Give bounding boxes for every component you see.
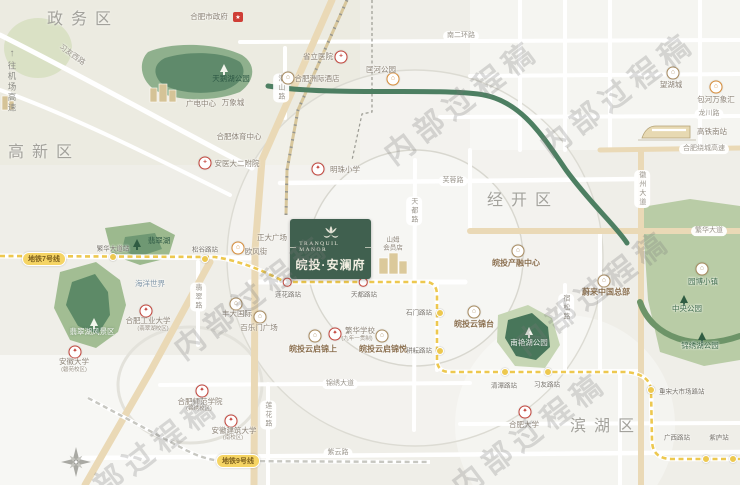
poi-label-fanhua-school: 繁华学校 [345,327,375,335]
road-label-longchuan: 龙川路 [695,109,724,119]
poi-label-sam-club: 会员店 [383,244,403,251]
poi-label-feicui-lake: 翡翠湖 [148,237,171,245]
station-label-tiandu: 天都路站 [351,291,377,298]
poi-label-yunjintai: 皖投云锦台 [454,321,494,330]
poi-label-mixc: 万象城 [222,99,245,107]
poi-label-mingzhu-primary: 明珠小学 [330,166,360,174]
poi-label-yunqi-jinshang: 皖投云启锦上 [289,346,337,355]
metro-station-dot [501,368,509,376]
station-label-songgu: 松谷路站 [192,246,218,253]
road-label-lianhua: 莲花路 [260,401,276,430]
poi-label-provincial-hospital: 省立医院 [303,53,333,61]
poi-label-ahjzu: 安徽建筑大学 [212,427,257,435]
metro-station-dot [544,368,552,376]
station-label-shimen: 石门路站 [406,309,432,316]
hospital-icon [199,157,212,170]
poi-label-guangdian: 广电中心 [186,100,216,108]
station-label-zilu: 紫庐站 [709,434,729,441]
mall-icon [710,81,723,94]
poi-label-anhui-univ: 安徽大学 [59,358,89,366]
poi-label-fanhua-school-sub: (九年一贯制) [341,336,372,342]
district-label-jingkai: 经开区 [487,186,559,210]
road-label-ziyun: 紫云路 [324,448,353,458]
poi-label-gov: 合肥市政府 [190,13,228,21]
location-map: 内部过程稿 内部过程稿 内部过程稿 内部过程稿 内部过程稿 内部过程稿 政务区 … [0,0,740,485]
road-label-tiandu: 天都路 [406,197,422,226]
poi-label-feicui-lake-scenic: 翡翠湖风景区 [70,328,115,336]
station-label-gengyun: 耕耘路站 [406,347,432,354]
tree-icon [133,239,141,247]
road-label-raocheng-expwy: 合肥绕城高速 [679,144,729,154]
hotel-icon [282,72,295,85]
tree-icon [220,64,228,72]
road-label-furong: 芙蓉路 [439,176,468,186]
metro-station-dot [436,347,444,355]
metro-station-dot [729,455,737,463]
road-label-fanhua-ave: 繁华大道 [691,226,727,236]
poi-icon [387,73,400,86]
road-label-south-2nd-ring: 南二环路 [443,31,479,41]
poi-label-south-rail-station: 高铁南站 [697,128,727,136]
poi-label-swan-lake-park: 天鹅湖公园 [212,75,250,83]
metro-interchange-dot [359,278,368,287]
poi-icon [696,263,709,276]
poi-icon [512,245,525,258]
poi-label-sam-club: 山姆 [387,236,400,243]
poi-label-zhengda-plaza: 正大广场 [257,234,287,242]
tree-icon [698,332,706,340]
district-label-gaoxin: 高新区 [8,138,80,162]
poi-icon [376,330,389,343]
metro-station-dot [201,255,209,263]
metro-station-dot [109,253,117,261]
poi-icon [468,306,481,319]
poi-label-chanrong-center: 皖投产融中心 [492,260,540,269]
poi-icon [232,242,245,255]
metro-line7-badge: 地铁7号线 [22,252,66,266]
poi-label-anyida2: 安医大二附院 [215,160,260,168]
station-label-qingtan: 清潭路站 [491,382,517,389]
road-label-huizhou-ave: 徽州大道 [634,170,650,208]
road-label-jinxiu-ave: 锦绣大道 [322,379,358,389]
poi-label-oufeng-street: 欧风街 [245,248,268,256]
poi-label-jinxiu-lake-park: 锦绣湖公园 [681,342,719,350]
station-label-guangxi: 广西路站 [664,434,690,441]
tree-icon [680,295,688,303]
poi-label-anhui-univ-sub: (磬苑校区) [61,367,87,373]
station-label-dashichang: 重宋大市场路站 [659,388,705,395]
poi-label-ocean-world: 海洋世界 [135,280,165,288]
poi-label-ahjzu-sub: (南校区) [223,435,243,441]
metro-station-dot [647,386,655,394]
government-icon [233,12,243,22]
metro-station-dot [702,455,710,463]
district-label-zhengwu: 政务区 [47,5,119,29]
poi-label-kuanghe-park: 匡河公园 [366,66,396,74]
station-label-fanhua-dadao: 繁华大道站 [97,245,130,252]
metro-line9-badge: 地铁9号线 [216,454,260,468]
school-icon [312,163,325,176]
hospital-icon [335,51,348,64]
poi-label-yunqi-jinyue: 皖投云启锦悦 [359,346,407,355]
airport-expressway-label: 往机场高速 [6,48,18,114]
poi-label-sports-center: 合肥体育中心 [217,133,262,141]
poi-label-central-park: 中央公园 [672,305,702,313]
poi-label-baohe-mixc: 包河万象汇 [697,96,735,104]
poi-label-hfut: 合肥工业大学 [126,317,171,325]
poi-icon [309,330,322,343]
metro-station-dot [436,309,444,317]
poi-label-yuanbo-town: 园博小镇 [688,278,718,286]
tree-icon [90,318,98,326]
project-crest-icon [321,225,341,240]
poi-label-intercontinental: 合肥洲际酒店 [295,75,340,83]
school-icon [329,328,342,341]
